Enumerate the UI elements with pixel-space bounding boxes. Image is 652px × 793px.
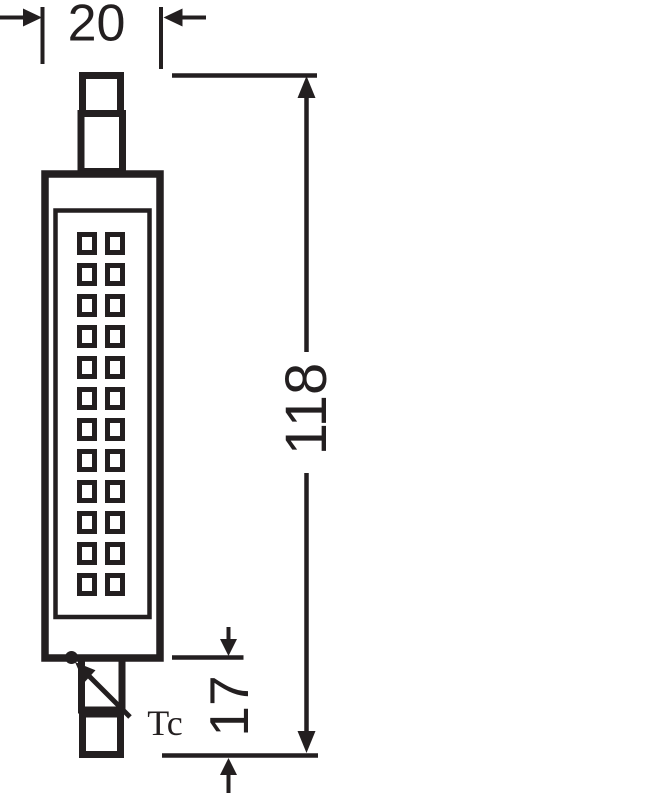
arrow-up-icon — [298, 76, 316, 98]
dimension-tc-offset: 17 — [172, 627, 260, 793]
arrow-right-icon — [23, 9, 42, 27]
dimension-length: 118 — [162, 76, 339, 756]
arrow-down-icon — [298, 731, 316, 753]
top-pin-tip — [83, 76, 121, 114]
dim-length-value: 118 — [274, 363, 339, 455]
led-chip — [108, 359, 123, 377]
led-chip — [108, 297, 123, 315]
dim-tc-offset-value: 17 — [198, 675, 260, 736]
tc-label: Tc — [147, 703, 182, 743]
lamp-dimension-drawing: 20 Tc 118 17 — [0, 0, 652, 793]
led-chip — [80, 390, 95, 408]
dimension-drawing-canvas: 20 Tc 118 17 — [0, 0, 652, 793]
led-chip — [108, 235, 123, 253]
led-chip — [80, 452, 95, 470]
led-chip — [80, 576, 95, 594]
led-chip — [80, 297, 95, 315]
led-chip — [108, 545, 123, 563]
led-chip — [80, 421, 95, 439]
led-chip — [80, 359, 95, 377]
led-chip — [108, 266, 123, 284]
led-chip — [80, 328, 95, 346]
led-chip — [80, 483, 95, 501]
top-pin-base — [81, 114, 123, 172]
led-chip — [108, 421, 123, 439]
led-chip — [108, 576, 123, 594]
tc-point-dot — [65, 651, 78, 664]
led-chip — [108, 390, 123, 408]
led-chip — [80, 266, 95, 284]
arrow-down-icon — [220, 639, 237, 656]
led-chip — [80, 235, 95, 253]
dimension-width: 20 — [0, 0, 206, 69]
led-chip — [108, 514, 123, 532]
led-chip — [108, 452, 123, 470]
lamp-window-outline — [56, 211, 150, 618]
dim-width-value: 20 — [68, 0, 126, 53]
led-chip — [108, 483, 123, 501]
lamp-drawing: Tc — [45, 76, 183, 755]
arrow-left-icon — [164, 9, 183, 27]
led-chip — [80, 545, 95, 563]
bottom-pin-tip — [83, 714, 121, 755]
led-chip — [80, 514, 95, 532]
arrow-up-icon — [220, 758, 237, 775]
led-chip — [108, 328, 123, 346]
